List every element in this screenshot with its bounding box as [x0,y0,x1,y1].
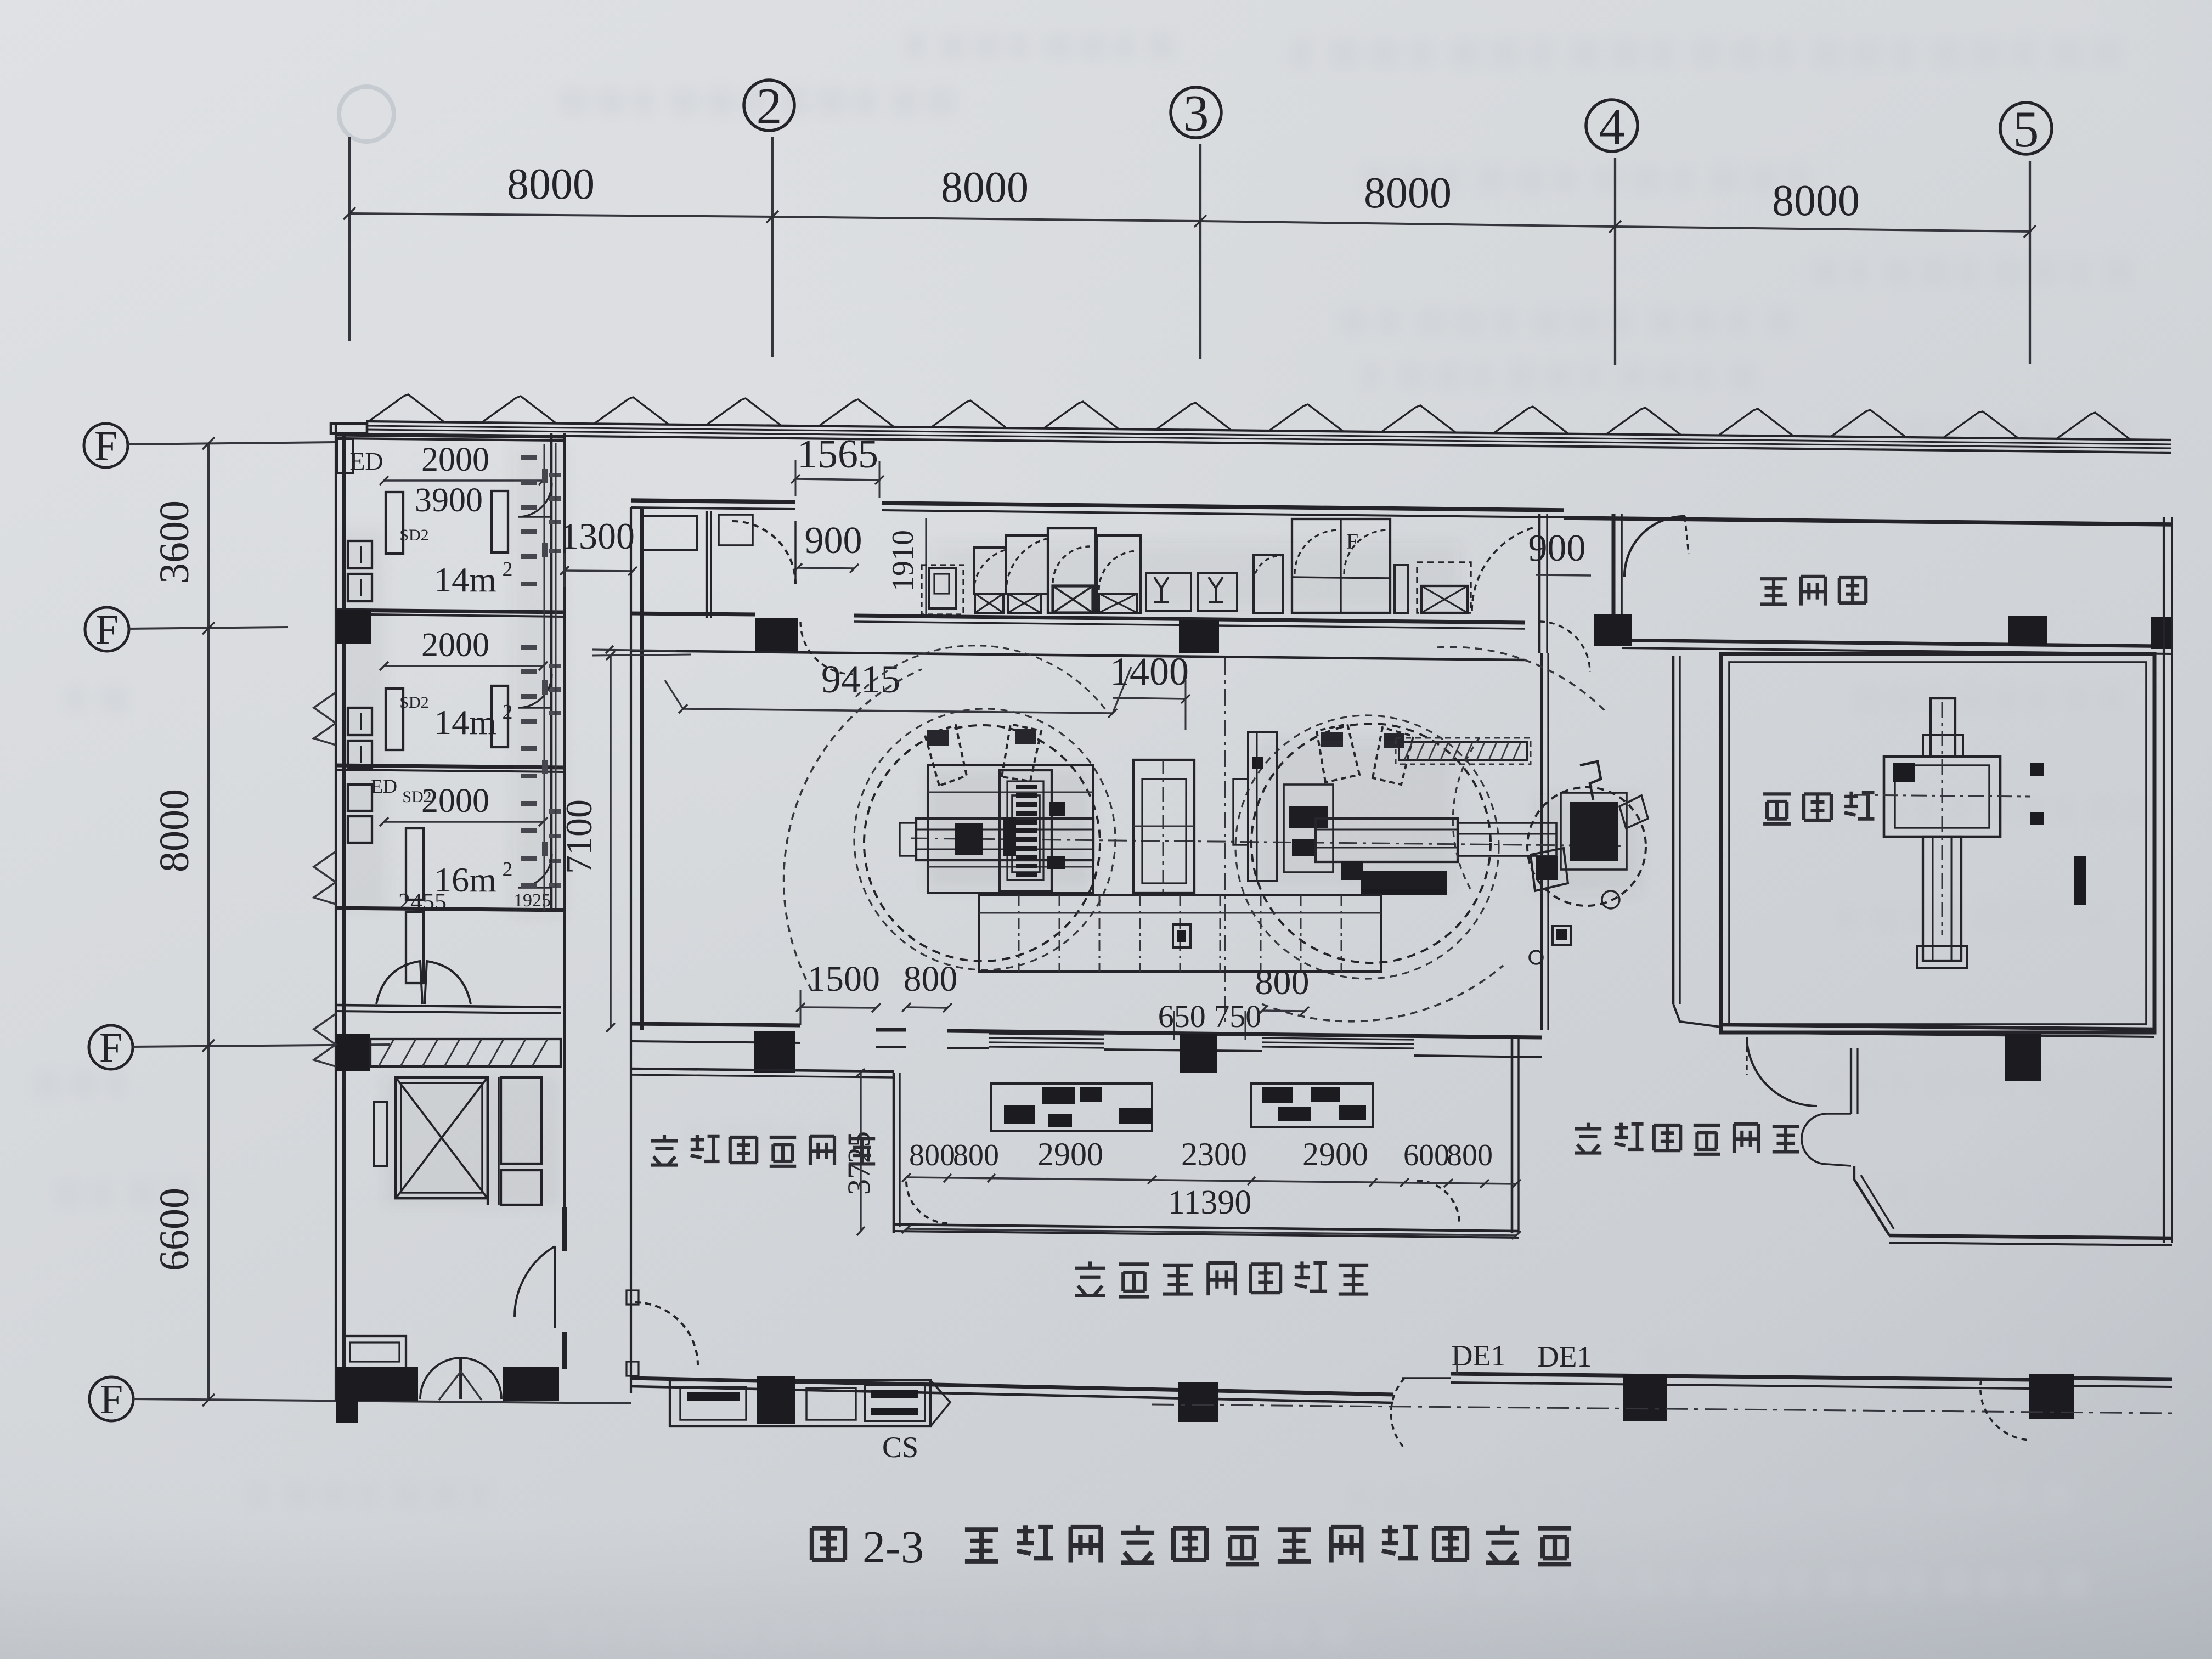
svg-text:F: F [95,607,119,653]
svg-text:9415: 9415 [821,657,900,701]
svg-text:8000: 8000 [151,789,198,872]
svg-text:F: F [100,1376,123,1423]
svg-text:SD2: SD2 [402,788,431,806]
svg-text:SD2: SD2 [399,526,428,544]
svg-text:2000: 2000 [421,441,489,478]
svg-text:2900: 2900 [1302,1136,1368,1172]
svg-text:SD2: SD2 [399,693,428,712]
svg-text:2: 2 [503,558,513,581]
svg-text:2: 2 [757,78,782,135]
svg-text:8000: 8000 [507,160,595,208]
svg-text:11390: 11390 [1168,1184,1252,1221]
svg-text:800: 800 [904,959,958,999]
svg-text:1400: 1400 [1110,650,1189,693]
svg-text:14m: 14m [434,560,496,599]
svg-text:800: 800 [1255,962,1310,1002]
svg-text:ED: ED [349,447,383,475]
svg-text:800: 800 [953,1138,999,1172]
svg-text:800: 800 [909,1138,955,1172]
svg-text:600: 600 [1403,1138,1449,1172]
svg-text:DE1: DE1 [1538,1340,1592,1373]
svg-text:1565: 1565 [797,432,878,477]
svg-text:3600: 3600 [151,500,198,584]
svg-text:F: F [94,423,117,469]
svg-text:1500: 1500 [808,959,880,999]
svg-text:DE1: DE1 [1452,1339,1506,1372]
svg-text:8000: 8000 [941,163,1029,212]
svg-text:800: 800 [1447,1138,1493,1172]
svg-text:F: F [99,1025,122,1071]
svg-text:2000: 2000 [421,627,489,664]
svg-text:900: 900 [1528,527,1586,569]
svg-text:14m: 14m [434,703,496,742]
svg-text:3: 3 [1183,85,1209,142]
svg-text:5: 5 [2013,101,2039,158]
svg-text:6600: 6600 [151,1188,198,1271]
svg-text:1910: 1910 [886,530,920,591]
svg-text:2900: 2900 [1037,1136,1103,1172]
svg-text:2: 2 [503,858,513,881]
svg-text:2300: 2300 [1181,1136,1247,1172]
svg-text:8000: 8000 [1772,177,1860,225]
svg-text:3900: 3900 [415,482,483,519]
svg-text:1300: 1300 [560,515,635,557]
svg-text:2-3: 2-3 [862,1522,924,1573]
svg-text:4: 4 [1599,98,1625,155]
svg-text:CS: CS [882,1431,918,1464]
svg-text:900: 900 [805,520,862,562]
svg-text:8000: 8000 [1364,169,1452,217]
